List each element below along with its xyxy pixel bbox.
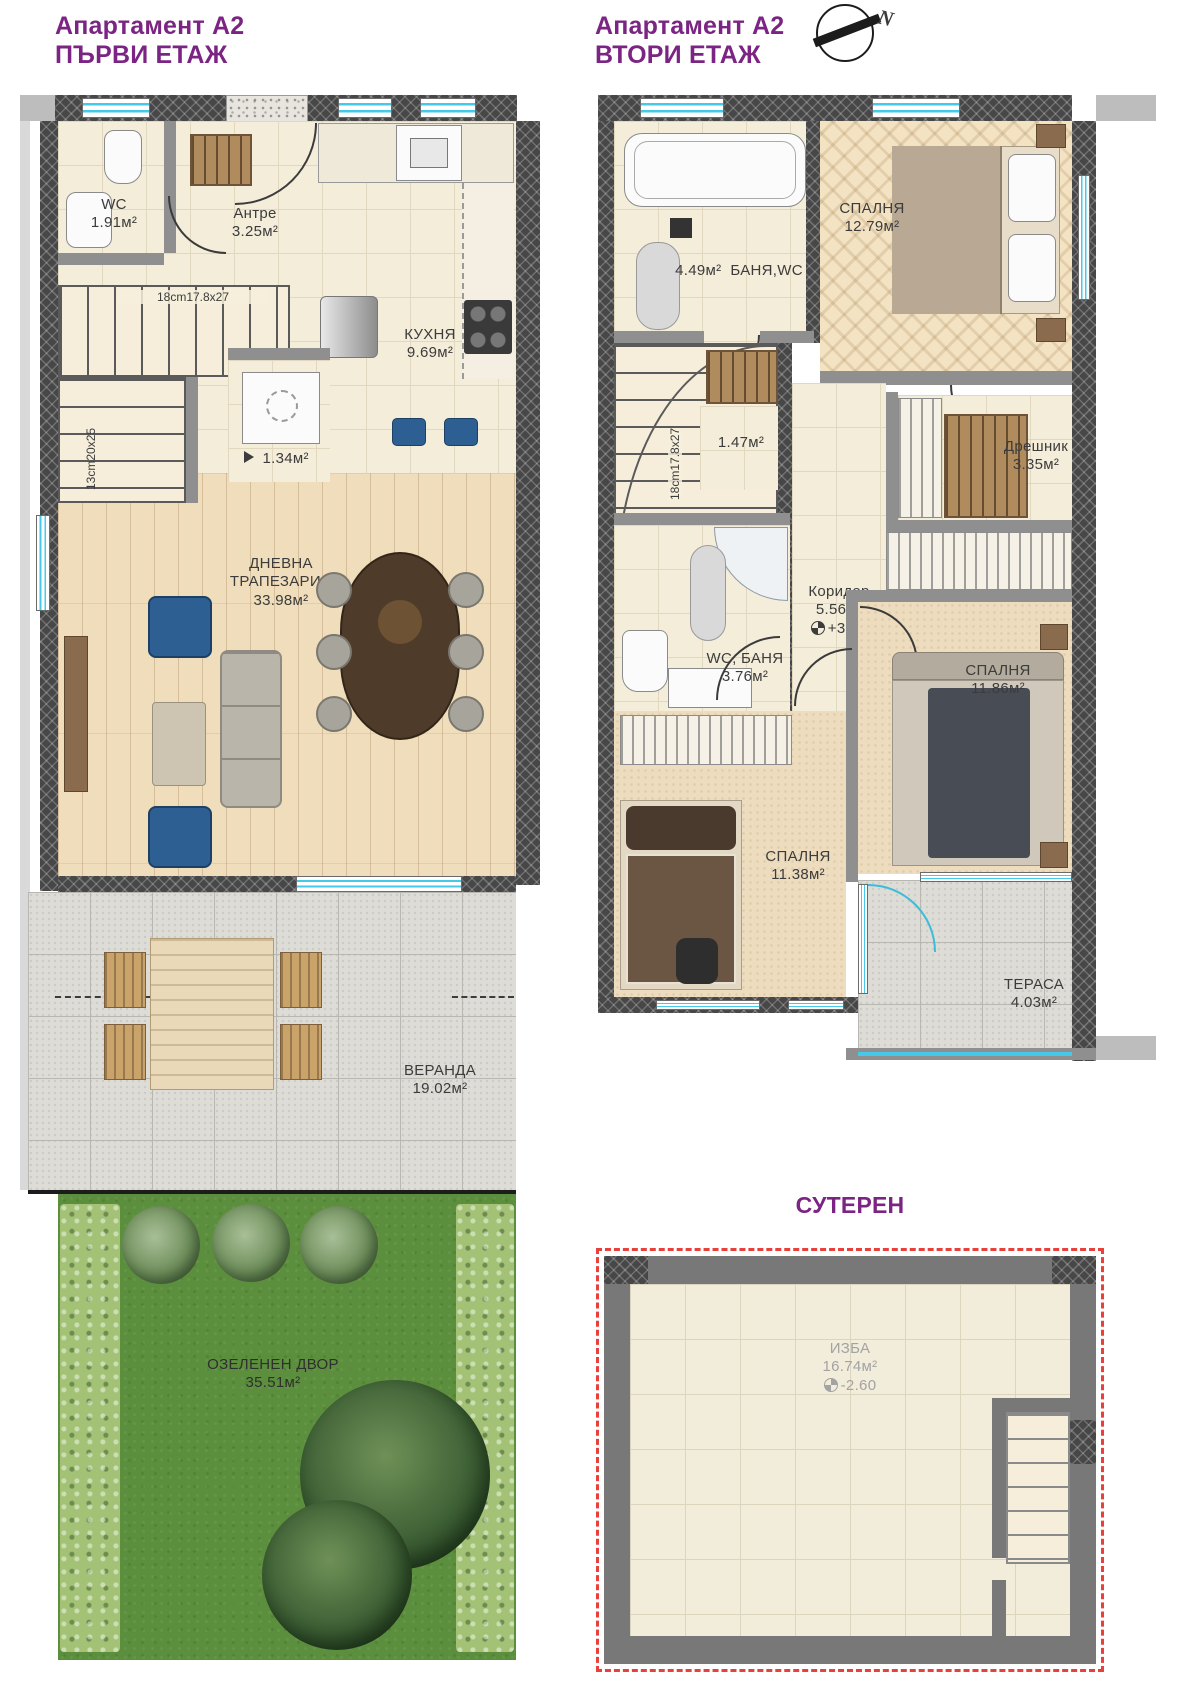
bath-cabinet (670, 218, 692, 238)
dresser-bottom-wall (886, 520, 1072, 532)
bedroom2-blanket (928, 688, 1030, 858)
wc2-sink-icon (690, 545, 726, 641)
floor1-left-wall (40, 121, 58, 891)
room-closet-label: 1.47м² (706, 434, 776, 452)
bedroom2-left-wall (846, 602, 858, 882)
floor1-right-wall (516, 121, 540, 885)
bedroom1-right-window (1078, 175, 1090, 300)
dining-chair-2 (316, 634, 352, 670)
patio-sliding-door (296, 876, 462, 892)
room-veranda-name: ВЕРАНДА (380, 1062, 500, 1080)
kitchen-sink-basin (410, 138, 448, 168)
floor2-title: Апартамент А2 ВТОРИ ЕТАЖ (595, 12, 784, 70)
stairs-upper-label: 18cm17.8x27 (118, 290, 268, 304)
wc2-top-wall (614, 513, 790, 525)
bedroom3-window-1 (656, 1000, 760, 1010)
room-antre-area: 3.25м² (200, 223, 310, 241)
dining-chair-3 (316, 696, 352, 732)
dining-chair-4 (448, 572, 484, 608)
neighbor-wall-stub-3 (1096, 1036, 1156, 1060)
basement-hatch-corner-1 (604, 1256, 648, 1284)
basement-room-area: 16.74м² (780, 1358, 920, 1376)
toilet-icon (104, 130, 142, 184)
basement-left-wall (604, 1284, 630, 1664)
nightstand-1 (1036, 124, 1066, 148)
bath-bedroom1-wall (806, 121, 820, 343)
room-dresser-name: Дрешник (996, 438, 1076, 456)
tree-2 (262, 1500, 412, 1650)
basement-top-wall (604, 1256, 1096, 1284)
floor1-title: Апартамент А2 ПЪРВИ ЕТАЖ (55, 12, 244, 70)
living-left-window (36, 515, 50, 611)
room-bath-name: БАНЯ,WC (730, 262, 802, 279)
room-kitchen-label: КУХНЯ 9.69м² (368, 326, 492, 363)
hall-wardrobe-row (886, 532, 1072, 590)
floor2-title-line1: Апартамент А2 (595, 12, 784, 41)
room-bedroom1-label: СПАЛНЯ 12.79м² (826, 200, 918, 237)
dresser-left-wall (886, 392, 898, 532)
bush-1 (122, 1206, 200, 1284)
bathtub-inner (634, 141, 796, 199)
room-veranda-area: 19.02м² (380, 1080, 500, 1098)
room-storage-area: 1.34м² (262, 450, 308, 467)
dining-chair-6 (448, 696, 484, 732)
basement-inner-wall-stub (992, 1580, 1006, 1636)
sofa (220, 650, 282, 808)
room-garden-label: ОЗЕЛЕНЕН ДВОР 35.51м² (198, 1356, 348, 1393)
room-bedroom2-name: СПАЛНЯ (952, 662, 1044, 680)
basement-right-wall (1070, 1284, 1096, 1664)
room-antre-name: Антре (200, 205, 310, 223)
basement-title: СУТЕРЕН (700, 1192, 1000, 1219)
basement-room-name: ИЗБА (780, 1340, 920, 1358)
bedroom1-pillow-2 (1008, 234, 1056, 302)
room-wc-name: WC (74, 196, 154, 214)
room-terrace-label: ТЕРАСА 4.03м² (994, 976, 1074, 1013)
living-bottom-wall-right (462, 876, 516, 892)
room-bedroom3-label: СПАЛНЯ 11.38м² (752, 848, 844, 885)
dining-table (340, 552, 460, 740)
basement-inner-wall-v (992, 1398, 1006, 1558)
room-bedroom3-name: СПАЛНЯ (752, 848, 844, 866)
basement-hatch-right (1070, 1420, 1096, 1464)
stair-wall (186, 377, 198, 503)
level-mark-icon (811, 621, 825, 635)
room-garden-name: ОЗЕЛЕНЕН ДВОР (198, 1356, 348, 1374)
basement-room-label: ИЗБА 16.74м² -2.60 (780, 1340, 920, 1395)
room-wc-area: 1.91м² (74, 214, 154, 232)
garden-chair-1 (104, 952, 146, 1008)
room-bedroom1-area: 12.79м² (826, 218, 918, 236)
bath-bottom-wall-b (760, 331, 814, 343)
basement-level-mark-icon (824, 1378, 838, 1392)
bath-sink-icon (636, 242, 680, 330)
dining-chair-5 (448, 634, 484, 670)
room-closet-area: 1.47м² (706, 434, 776, 452)
wc-window (82, 98, 150, 118)
floor1-title-line2: ПЪРВИ ЕТАЖ (55, 41, 244, 70)
coffee-table (152, 702, 206, 786)
floor1-title-line1: Апартамент А2 (55, 12, 244, 41)
floor2-left-wall (598, 121, 614, 1013)
garden-chair-2 (104, 1024, 146, 1080)
terrace-bottom-glass (858, 1052, 1072, 1056)
floor2-title-line2: ВТОРИ ЕТАЖ (595, 41, 784, 70)
wc2-toilet-icon (622, 630, 668, 692)
veranda-dashed-line-right (452, 996, 514, 998)
room-garden-area: 35.51м² (198, 1374, 348, 1392)
bedroom3-window-2 (788, 1000, 844, 1010)
wc-bottom-wall (58, 253, 164, 265)
wc-antre-wall (164, 121, 176, 253)
room-kitchen-name: КУХНЯ (368, 326, 492, 344)
boiler-coil-icon (266, 390, 298, 422)
nightstand-2 (1036, 318, 1066, 342)
storage-top-wall (228, 348, 330, 360)
living-bottom-wall-left (58, 876, 296, 892)
room-dresser-area: 3.35м² (996, 456, 1076, 474)
bush-3 (300, 1206, 378, 1284)
bush-2 (212, 1204, 290, 1282)
room-terrace-name: ТЕРАСА (994, 976, 1074, 994)
neighbor-wall-stub-2 (1096, 95, 1156, 121)
bedroom2-top-wall (846, 590, 1072, 602)
tv-unit (64, 636, 88, 792)
stairs2-label: 18cm17.8x27 (668, 428, 682, 500)
dining-chair-1 (316, 572, 352, 608)
neighbor-wall-stub (20, 95, 56, 121)
hedge-left (60, 1204, 120, 1652)
bedroom3-chair (676, 938, 718, 984)
armchair-2 (148, 806, 212, 868)
table-decor (378, 600, 422, 644)
room-terrace-area: 4.03м² (994, 994, 1074, 1012)
bath-bottom-wall-a (614, 331, 704, 343)
arrow-icon (244, 451, 254, 463)
closet-wardrobe (706, 350, 778, 404)
terrace-sliding-door (920, 872, 1072, 882)
bedroom1-top-window (872, 98, 960, 118)
nightstand-3 (1040, 624, 1068, 650)
room-bath-area: 4.49м² (675, 262, 721, 279)
dresser-wardrobe-1 (898, 398, 942, 518)
basement-bottom-wall (604, 1636, 1096, 1664)
room-kitchen-area: 9.69м² (368, 344, 492, 362)
room-storage-label: 1.34м² (244, 450, 334, 468)
room-veranda-label: ВЕРАНДА 19.02м² (380, 1062, 500, 1099)
room-dresser-label: Дрешник 3.35м² (996, 438, 1076, 475)
room-antre-label: Антре 3.25м² (200, 205, 310, 242)
room-bedroom2-area: 11.86м² (952, 680, 1044, 698)
kitchen-window-2 (420, 98, 476, 118)
bar-stool-1 (392, 418, 426, 446)
bedroom3-pillows (626, 806, 736, 850)
bedroom1-pillow-1 (1008, 154, 1056, 222)
stairs-lower-flight (58, 377, 186, 503)
nightstand-4 (1040, 842, 1068, 868)
bath-window (640, 98, 724, 118)
garden-chair-3 (280, 952, 322, 1008)
room-bedroom1-name: СПАЛНЯ (826, 200, 918, 218)
bedroom3-wardrobe (620, 715, 792, 765)
terrace-left-window (858, 884, 868, 994)
armchair-1 (148, 596, 212, 658)
room-bedroom3-area: 11.38м² (752, 866, 844, 884)
kitchen-window-1 (338, 98, 392, 118)
north-letter: N (875, 5, 896, 33)
room-bedroom2-label: СПАЛНЯ 11.86м² (952, 662, 1044, 699)
garden-chair-4 (280, 1024, 322, 1080)
basement-hatch-corner-2 (1052, 1256, 1096, 1284)
garden-table (150, 938, 274, 1090)
basement-stairs (1006, 1412, 1070, 1564)
room-wc-label: WC 1.91м² (74, 196, 154, 233)
floor-plan-sheet: Апартамент А2 ПЪРВИ ЕТАЖ Апартамент А2 В… (0, 0, 1200, 1682)
stairs-lower-label: 13cm20x25 (84, 428, 98, 490)
room-bath-label: 4.49м² БАНЯ,WC (664, 262, 814, 280)
basement-level: -2.60 (780, 1377, 920, 1395)
bar-stool-2 (444, 418, 478, 446)
